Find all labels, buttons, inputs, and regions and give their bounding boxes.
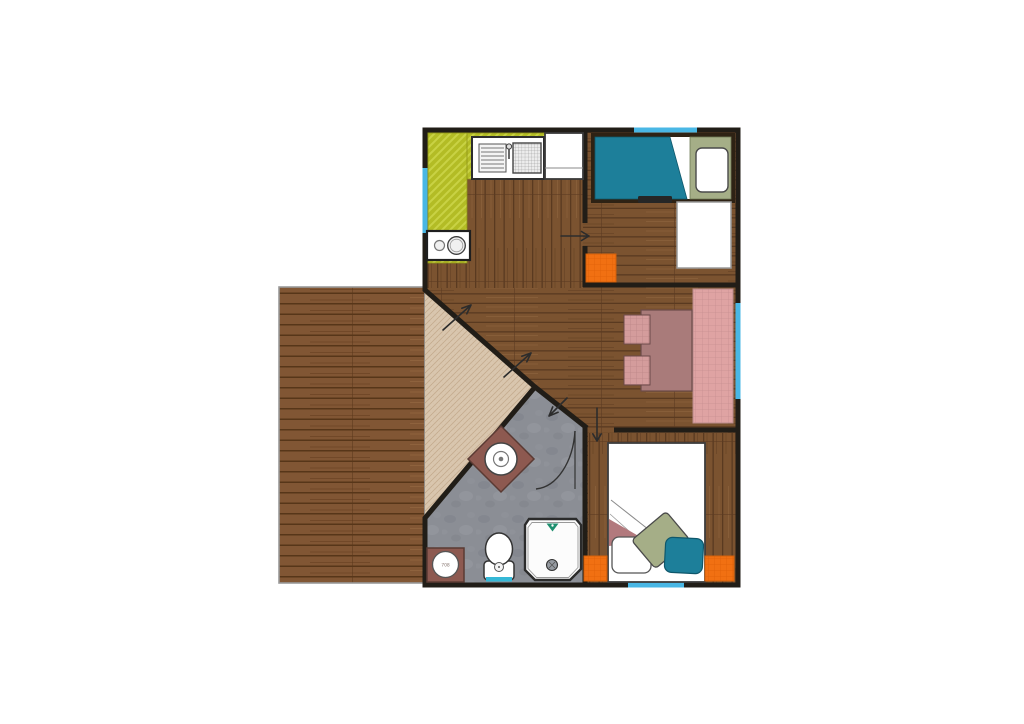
washing-machine-label: 708 (441, 563, 450, 569)
toilet-bowl (486, 533, 513, 565)
deck-terrace (279, 287, 425, 583)
bed2-pillow-teal (664, 537, 704, 574)
fridge-cabinet (545, 133, 583, 179)
bed1-step-handle (638, 196, 672, 203)
shower-head-dot (551, 524, 553, 526)
vanity-drain (499, 457, 504, 462)
toilet-water-line (486, 577, 512, 582)
floorplan-svg: 708 (0, 0, 1024, 724)
bedroom2-orange-rug-left (584, 556, 607, 581)
bed1-pillow (696, 148, 728, 192)
bedroom1-orange-rug (586, 254, 616, 282)
floorplan-page: 708 (0, 0, 1024, 724)
toilet-flush-dot (498, 566, 500, 568)
bedroom2-orange-rug-right (705, 556, 734, 581)
living-pink-rug (693, 289, 733, 423)
bed1-second-mattress (677, 202, 731, 268)
sink-bowl (513, 143, 541, 173)
sofa-cushion-bottom (624, 356, 650, 385)
sink-faucet (506, 144, 511, 149)
sofa-cushion-top (624, 315, 650, 344)
stove-burner-small (435, 241, 445, 251)
